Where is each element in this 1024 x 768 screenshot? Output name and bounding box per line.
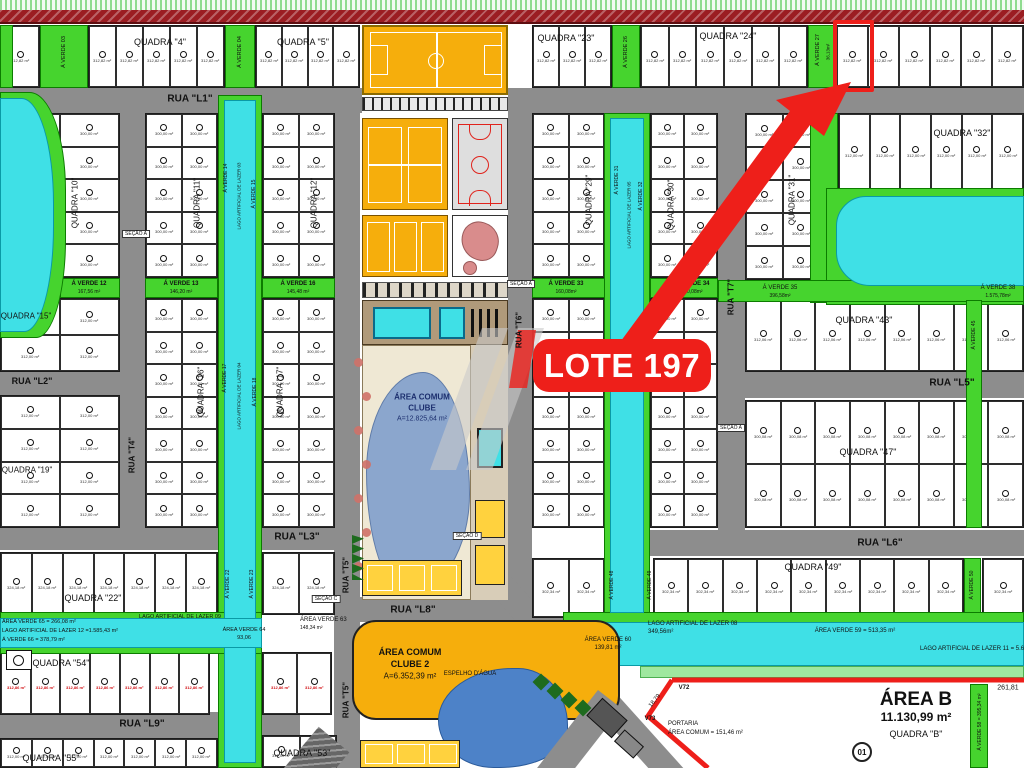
map-label: Á VERDE 27 xyxy=(815,34,821,66)
map-label: QUADRA "19" xyxy=(2,466,53,475)
map-label: QUADRA "B" xyxy=(890,729,943,739)
map-label: A=6.352,39 m² xyxy=(384,672,437,681)
map-label: Á VERDE 26 xyxy=(623,36,629,68)
map-label: 36,13m² xyxy=(826,44,831,61)
map-label: QUADRA "53" xyxy=(274,748,331,758)
map-label: SEÇÃO A xyxy=(717,424,745,432)
map-label: 11.130,99 m² xyxy=(881,710,952,724)
map-label: LAGO ARTIFICIAL DE LAZER 08 xyxy=(648,621,737,627)
map-label: ÁREA VERDE 60 xyxy=(585,637,632,643)
map-label: QUADRA "32" xyxy=(934,128,991,138)
map-label: RUA "L9" xyxy=(119,719,164,730)
map-label: Á VERDE 16 xyxy=(280,281,315,287)
map-label: RUA "T7" xyxy=(727,279,736,315)
map-label: 349,56m² xyxy=(648,629,673,635)
map-label: Á VERDE 03 xyxy=(61,36,67,68)
map-label: ÁREA VERDE 64 xyxy=(223,627,266,633)
map-label: QUADRA "54" xyxy=(33,658,90,668)
map-label: RUA "L5" xyxy=(929,378,974,389)
map-label: 167,56 m² xyxy=(78,289,101,295)
map-label: LAGO ARTIFICIAL DE LAZER 09 xyxy=(139,614,221,620)
map-label: Á VERDE 34 xyxy=(674,281,709,287)
map-label: SEÇÃO A xyxy=(122,230,150,238)
map-label: ÁREA B xyxy=(880,689,952,711)
map-label: Á VERDE 49 xyxy=(647,571,653,600)
map-label: QUADRA "12" xyxy=(310,178,319,229)
map-label: Á VERDE 38 xyxy=(981,285,1016,291)
map-label: RUA "L1" xyxy=(167,94,212,105)
map-label: CLUBE 2 xyxy=(391,659,430,669)
map-label: Á VERDE 33 xyxy=(548,281,583,287)
map-label: QUADRA "4" xyxy=(134,37,186,47)
map-label: 261,81 xyxy=(997,685,1018,692)
map-label: QUADRA "49" xyxy=(785,562,842,572)
map-label: Á VERDE 48 xyxy=(609,571,615,600)
map-label: SEÇÃO C xyxy=(312,595,341,603)
map-label: 146,20 m² xyxy=(170,289,193,295)
map-label: A=12.825,64 m² xyxy=(397,416,447,423)
highlighted-lot-outline xyxy=(833,20,874,92)
map-label: ÁREA COMUM xyxy=(379,647,442,657)
map-label: RUA "L8" xyxy=(390,605,435,616)
map-label: RUA "L6" xyxy=(857,538,902,549)
map-label: Á VERDE 35 xyxy=(763,285,798,291)
map-label: ÁREA COMUM xyxy=(394,393,450,402)
map-label: 145,48 m² xyxy=(287,289,310,295)
map-label: Á VERDE 18 xyxy=(252,378,258,407)
map-label: LAGO ARTIFICIAL DE LAZER 03 xyxy=(237,162,242,229)
map-label: ÁREA VERDE 65 = 266,08 m² xyxy=(2,619,76,625)
map-label: Á VERDE 22 xyxy=(225,570,231,599)
map-label: QUADRA "5" xyxy=(277,37,329,47)
map-label: RUA "L2" xyxy=(12,376,53,386)
map-label: PORTARIA xyxy=(668,721,698,727)
map-label: QUADRA "24" xyxy=(700,31,757,41)
map-label: QUADRA "31" xyxy=(788,175,797,226)
map-label: Á VERDE 23 xyxy=(249,570,255,599)
lote-197-badge: LOTE 197 xyxy=(533,339,711,392)
map-label: QUADRA "11" xyxy=(193,178,202,228)
map-label: ÁREA VERDE 63 xyxy=(300,617,347,623)
map-label: 160,08m² xyxy=(555,289,576,295)
map-label: RUA "T4" xyxy=(128,437,137,473)
map-label: QUADRA "22" xyxy=(65,593,122,603)
map-label: QUADRA "17" xyxy=(276,367,285,418)
map-label: LAGO ARTIFICIAL DE LAZER 11 = 5.682 xyxy=(920,646,1024,652)
map-label: ÁREA COMUM = 151,46 m² xyxy=(668,730,743,736)
map-label: QUADRA "43" xyxy=(836,315,893,325)
map-label: Á VERDE 04 xyxy=(237,36,243,68)
map-label: Á VERDE 12 xyxy=(71,281,106,287)
map-label: Á VERDE 14 xyxy=(223,164,229,193)
map-label: 160,08m² xyxy=(681,289,702,295)
map-label: V73 xyxy=(645,716,656,722)
map-label: CLUBE xyxy=(408,404,436,413)
map-label: RUA "T5" xyxy=(342,682,351,718)
map-label: QUADRA "15" xyxy=(1,312,52,321)
map-label: LAGO ARTIFICIAL DE LAZER 12 =1.585,43 m² xyxy=(2,628,118,634)
map-label: Á VERDE 17 xyxy=(222,364,228,393)
map-label: ÁREA VERDE 59 = 513,35 m² xyxy=(815,628,896,634)
map-label: RUA "T5" xyxy=(342,557,351,593)
map-label: QUADRA "23" xyxy=(538,33,595,43)
map-label: 93,06 xyxy=(237,635,251,641)
map-label: QUADRA "10" xyxy=(71,178,80,229)
map-label: Á VERDE 32 xyxy=(638,182,644,211)
map-label: ESPELHO D'ÁGUA xyxy=(444,671,497,677)
map-label: QUADRA "47" xyxy=(840,447,897,457)
map-label: 18,79 xyxy=(648,693,662,709)
labels-layer: QUADRA "4"QUADRA "5"QUADRA "23"QUADRA "2… xyxy=(0,0,1024,768)
map-label: Á VERDE 58 = 395,34 m² xyxy=(977,693,983,750)
map-label: Á VERDE 15 xyxy=(251,180,257,209)
map-label: Á VERDE 50 xyxy=(969,571,975,600)
map-label: QUADRA "29" xyxy=(585,175,594,226)
map-label: 396,58m² xyxy=(769,293,790,299)
map-label: 1.575,78m² xyxy=(985,293,1010,299)
map-label: QUADRA "16" xyxy=(197,367,206,418)
map-label: LAGO ARTIFICIAL DE LAZER 04 xyxy=(237,362,242,429)
map-label: 148,34 m² xyxy=(300,625,323,631)
map-label: QUADRA "55" xyxy=(23,753,80,763)
map-label: Á VERDE 66 = 378,79 m² xyxy=(2,637,65,643)
map-label: Á VERDE 45 xyxy=(971,321,977,350)
map-label: SEÇÃO D xyxy=(453,532,482,540)
map-label: RUA "T6" xyxy=(515,312,524,348)
map-label: 139,81 m² xyxy=(594,645,621,651)
site-plan-map: 312,82 m²312,82 m²312,82 m²312,82 m²312,… xyxy=(0,0,1024,768)
map-label: QUADRA "30" xyxy=(667,180,676,231)
lot-01-circle-label: 01 xyxy=(852,742,872,762)
map-label: LAGO ARTIFICIAL DE LAZER 05 xyxy=(627,181,632,248)
map-label: V72 xyxy=(679,685,690,691)
map-label: Á VERDE 13 xyxy=(163,281,198,287)
map-label: Á VERDE 31 xyxy=(614,166,620,195)
map-label: RUA "L3" xyxy=(274,532,319,543)
map-label: SEÇÃO A xyxy=(507,280,535,288)
